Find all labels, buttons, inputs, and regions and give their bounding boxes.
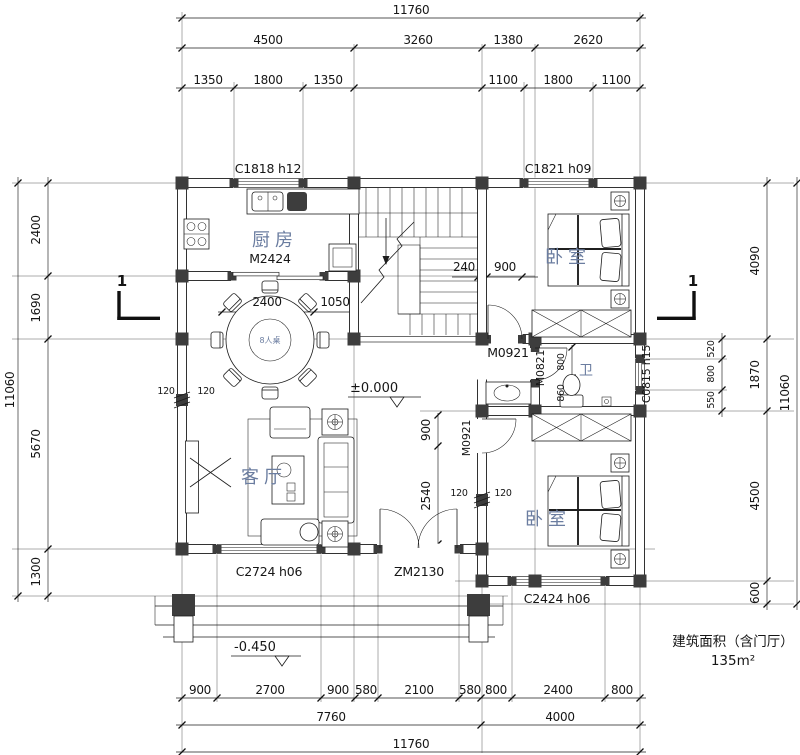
tv-cabinet xyxy=(186,441,199,513)
area-note-line2: 135m² xyxy=(711,653,755,669)
dim-right: 1870 xyxy=(748,360,762,389)
dim-interior: 2400 xyxy=(252,295,281,309)
label-c0815: C0815 h15 xyxy=(640,345,653,404)
dim-interior: 120 xyxy=(197,386,214,397)
dim-interior: 120 xyxy=(494,488,511,499)
window-c2424 xyxy=(512,577,605,586)
dim-top: 1380 xyxy=(493,33,522,47)
floor-plan-drawing: 8人桌 xyxy=(0,0,800,755)
level-marker-porch: -0.450 xyxy=(231,640,301,666)
dim-left: 2400 xyxy=(29,215,43,244)
dim-bottom: 580 xyxy=(459,683,481,697)
dim-right: 4500 xyxy=(748,481,762,510)
dim-bottom: 800 xyxy=(485,683,507,697)
dim-interior: 2540 xyxy=(419,481,433,510)
dim-top: 3260 xyxy=(403,33,432,47)
label-m0921-bottom: M0921 xyxy=(460,420,473,457)
room-living: 客厅 xyxy=(241,467,287,488)
entry-porch xyxy=(155,594,503,642)
dim-top: 1350 xyxy=(313,73,342,87)
dim-bottom: 800 xyxy=(611,683,633,697)
label-zm2130: ZM2130 xyxy=(394,564,444,579)
dim-interior: 240 xyxy=(453,260,475,274)
dim-bottom: 2100 xyxy=(404,683,433,697)
room-bedroom-bottom: 卧室 xyxy=(525,509,571,530)
dim-top: 1350 xyxy=(193,73,222,87)
dim-top: 1800 xyxy=(543,73,572,87)
porch-column xyxy=(172,594,195,616)
level-ground-text: ±0.000 xyxy=(350,381,398,396)
dim-bottom: 580 xyxy=(355,683,377,697)
dim-bottom: 2700 xyxy=(255,683,284,697)
window-c1818 xyxy=(234,179,303,188)
dining-table-label: 8人桌 xyxy=(259,335,280,345)
section-mark-left: 1 xyxy=(117,272,160,320)
dim-interior: 120 xyxy=(157,386,174,397)
level-marker-ground: ±0.000 xyxy=(348,381,421,407)
label-m0821: M0821 xyxy=(534,350,547,387)
window-c1821 xyxy=(524,179,593,188)
dim-interior: 120 xyxy=(450,488,467,499)
label-m0921-top: M0921 xyxy=(487,345,529,360)
dim-top-total: 11760 xyxy=(393,3,430,17)
kitchen-cooktop xyxy=(287,192,307,211)
window-c2724 xyxy=(217,545,321,554)
floor-plan-page: 8人桌 xyxy=(0,0,800,755)
room-bath: 卫 xyxy=(579,363,593,379)
dim-left: 1300 xyxy=(29,557,43,586)
section-left-number: 1 xyxy=(117,272,127,290)
kitchen-sink xyxy=(252,192,283,211)
dim-bottom: 900 xyxy=(327,683,349,697)
label-c1821: C1821 h09 xyxy=(525,161,592,176)
sofa xyxy=(318,437,354,523)
dim-right: 4090 xyxy=(748,246,762,275)
dim-right-window: 550 xyxy=(706,391,717,408)
dim-interior: 860 xyxy=(556,384,567,401)
area-note: 建筑面积（含门厅） 135m² xyxy=(672,634,794,669)
dim-top: 1100 xyxy=(601,73,630,87)
level-porch-text: -0.450 xyxy=(234,640,276,655)
section-right-number: 1 xyxy=(688,272,698,290)
floor-drain xyxy=(602,397,611,406)
dim-interior: 900 xyxy=(494,260,516,274)
dim-bottom: 4000 xyxy=(545,710,574,724)
dim-left: 5670 xyxy=(29,429,43,458)
dim-left: 1690 xyxy=(29,293,43,322)
bathroom-fixtures xyxy=(486,375,611,408)
area-note-line1: 建筑面积（含门厅） xyxy=(672,634,794,650)
dim-right-window: 520 xyxy=(706,340,717,357)
section-mark-right: 1 xyxy=(657,272,698,320)
dim-bottom: 2400 xyxy=(543,683,572,697)
room-bedroom-top: 卧室 xyxy=(545,247,591,268)
label-m2424: M2424 xyxy=(249,251,291,266)
dim-top: 1800 xyxy=(253,73,282,87)
dim-right-window: 800 xyxy=(706,365,717,382)
dim-right: 600 xyxy=(748,582,762,604)
porch-column xyxy=(467,594,490,616)
dim-top: 1100 xyxy=(488,73,517,87)
room-kitchen: 厨房 xyxy=(252,230,298,251)
label-c2424: C2424 h06 xyxy=(524,591,591,606)
dim-bottom-total: 11760 xyxy=(393,737,430,751)
dim-interior: 1050 xyxy=(320,295,349,309)
dim-right-outer: 11060 xyxy=(778,375,792,412)
dim-bottom: 7760 xyxy=(316,710,345,724)
wardrobe-bottom xyxy=(532,414,631,441)
wardrobe-top xyxy=(532,310,631,337)
dim-top: 2620 xyxy=(573,33,602,47)
dim-interior: 800 xyxy=(556,353,567,370)
bedroom-bottom-furniture xyxy=(532,414,631,568)
dim-top: 4500 xyxy=(253,33,282,47)
dim-bottom: 900 xyxy=(189,683,211,697)
door-zm2130-entry xyxy=(380,509,457,548)
dim-interior: 900 xyxy=(419,419,433,441)
label-c1818: C1818 h12 xyxy=(235,161,302,176)
dim-left-outer: 11060 xyxy=(3,372,17,409)
label-c2724: C2724 h06 xyxy=(236,564,303,579)
armchair xyxy=(270,407,310,438)
